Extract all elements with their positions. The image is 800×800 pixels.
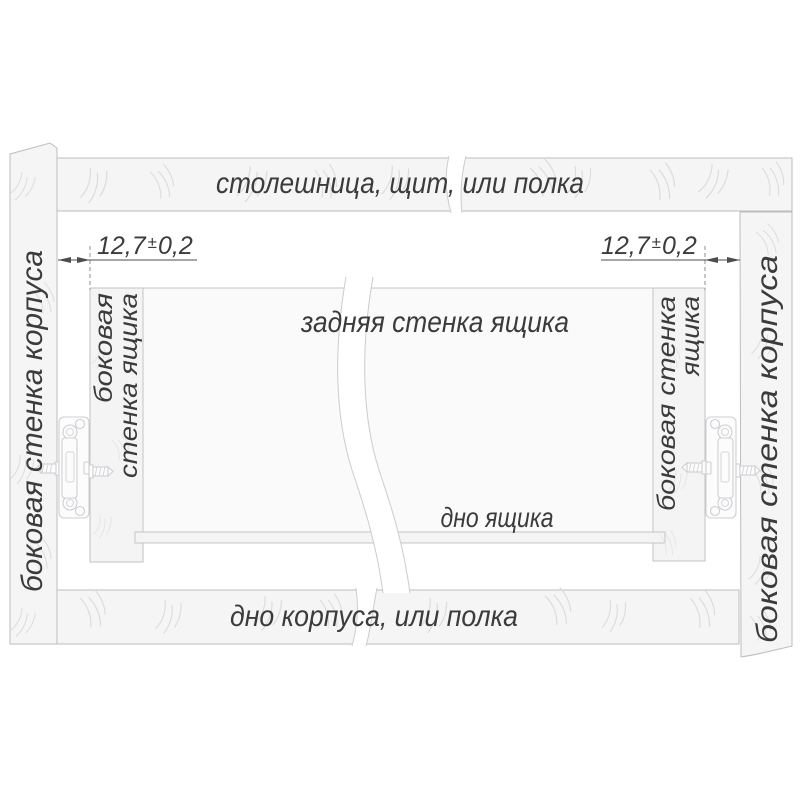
dimension-arrow-icon — [58, 257, 71, 263]
bearing-icon — [718, 425, 732, 439]
left-wall-label: боковая стенка корпуса — [16, 250, 49, 592]
drawer-left-wall-label-line2: стенка ящика — [115, 293, 143, 478]
dimension-right-text: 12,7±0,2 — [601, 232, 697, 260]
dimension-arrow-icon — [727, 257, 740, 263]
bearing-icon — [711, 507, 720, 516]
back-wall-label: задняя стенка ящика — [300, 306, 569, 339]
right-wall-label: боковая стенка корпуса — [751, 255, 784, 643]
bearing-icon — [711, 420, 720, 429]
bearing-icon — [63, 425, 77, 439]
bottom-panel-label: дно корпуса, или полка — [230, 600, 518, 633]
dimension-left: 12,7±0,2 — [58, 232, 197, 290]
bearing-icon — [76, 507, 85, 516]
bearing-icon — [76, 420, 85, 429]
dimension-left-text: 12,7±0,2 — [97, 232, 193, 260]
dimension-arrow-icon — [77, 257, 90, 263]
drawer-bottom-label: дно ящика — [441, 502, 554, 533]
top-panel-label: столешница, щит, или полка — [216, 167, 584, 200]
drawer-right-wall-label-line2: ящика — [677, 296, 705, 377]
drawer-left-wall-label-line1: боковая — [90, 293, 118, 403]
dimension-right: 12,7±0,2 — [601, 232, 740, 290]
dimension-arrow-icon — [705, 257, 718, 263]
diagram-canvas: 12,7±0,2 12,7±0,2 столешница, щит, или п… — [0, 0, 800, 800]
drawer-mounting-diagram: 12,7±0,2 12,7±0,2 столешница, щит, или п… — [0, 0, 800, 800]
